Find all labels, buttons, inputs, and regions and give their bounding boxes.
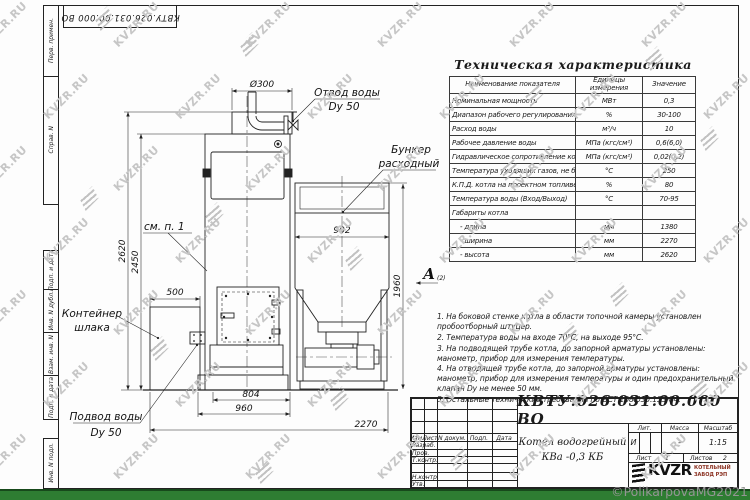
table-row: - длинамм1380 [450, 220, 696, 234]
tech-characteristics: Техническая характеристика Наименование … [449, 57, 697, 262]
tb-lit-label: Лит. [638, 425, 652, 432]
tb-scale-label: Масштаб [704, 425, 733, 432]
tb-col-ndoc: N докум. [438, 435, 466, 442]
watermark-text: KVZR.RU [0, 143, 30, 194]
kvzr-logo-text: KVZR [648, 461, 692, 479]
tb-designation: КВТУ.026.031.00.000 ВО [517, 397, 738, 423]
tb-row-utv: Утв. [412, 481, 425, 488]
table-row: Габариты котла [450, 206, 696, 220]
tech-header-name: Наименование показателя [450, 77, 576, 94]
margin-label: Перв. примен. [48, 18, 55, 63]
tb-document-name: Котел водогрейный КВа -0,3 КБ [517, 423, 628, 488]
tb-doc-name-line2: КВа -0,3 КБ [517, 450, 628, 465]
tb-sheets-value: 2 [723, 455, 727, 462]
tb-col-podp: Подп. [470, 435, 488, 442]
table-row: Рабочее давление водыМПа (кгс/см²)0,6(6,… [450, 136, 696, 150]
margin-cell: Подп. и дата [44, 251, 58, 290]
tb-col-list: Лист [422, 435, 437, 442]
table-row: Гидравлическое сопротивление котлаМПа (к… [450, 150, 696, 164]
watermark-text: KVZR.RU [0, 431, 30, 482]
table-row: - ширинамм2270 [450, 234, 696, 248]
margin-cell: Справ. N [44, 76, 58, 203]
table-row: - высотамм2620 [450, 248, 696, 262]
margin-cell: Взам. инв. N [44, 333, 58, 376]
margin-box-mid: Подп. и дата Инв. N дубл. Взам. инв. N П… [43, 250, 59, 420]
margin-cell: Перв. примен. [44, 6, 58, 77]
tech-header-row: Наименование показателя Единицы измерени… [450, 77, 696, 94]
watermark-text: KVZR.RU [0, 0, 30, 50]
margin-label: Подп. и дата [48, 250, 55, 291]
margin-box-top: Перв. примен. Справ. N [43, 5, 59, 205]
kvzr-company-name: КОТЕЛЬНЫЙ ЗАВОД РЭП [694, 465, 731, 479]
watermark-text: KVZR.RU [0, 287, 30, 338]
tech-header-unit: Единицы измерения [576, 77, 643, 94]
margin-label: Подп. и дата [48, 377, 55, 418]
tb-mass-label: Масса [670, 425, 689, 432]
tb-sheets-label: Листов [690, 455, 712, 462]
margin-cell: Инв. N подл. [44, 439, 58, 487]
margin-label: Инв. N подл. [48, 443, 55, 483]
margin-label: Инв. N дубл. [48, 291, 55, 330]
tb-doc-name-line1: Котел водогрейный [517, 435, 628, 450]
tb-row-tkontr: Т.контр. [412, 457, 438, 464]
tb-lit-value: И [631, 438, 637, 447]
table-row: Диапазон рабочего регулирования%30-100 [450, 108, 696, 122]
table-row: Расход водым³/ч10 [450, 122, 696, 136]
note-2: 2. Температура воды на входе 70°С, на вы… [437, 333, 739, 343]
tech-table: Наименование показателя Единицы измерени… [449, 76, 696, 262]
margin-label: Взам. инв. N [48, 335, 55, 374]
title-block: Изм. Лист N докум. Подп. Дата Разраб. Пр… [410, 397, 738, 488]
copyright-watermark: ©PolikarpovaMG2021 [611, 484, 748, 499]
kvzr-company-line1: КОТЕЛЬНЫЙ [694, 465, 731, 472]
kvzr-logo-icon [632, 463, 645, 483]
kvzr-company-line2: ЗАВОД РЭП [694, 472, 731, 479]
table-row: Температура воды (Вход/Выход)°С70-95 [450, 192, 696, 206]
table-row: Номинальная мощностьМВт0,3 [450, 94, 696, 108]
note-4: 4. На отводящей трубе котла, до запорной… [437, 364, 739, 394]
table-row: Температура уходящих газов, не более°С25… [450, 164, 696, 178]
margin-cell: Инв. N дубл. [44, 290, 58, 333]
tech-table-title: Техническая характеристика [449, 57, 697, 72]
tech-header-value: Значение [643, 77, 696, 94]
tb-row-nkontr: Н.контр. [412, 474, 439, 481]
tb-row-razrab: Разраб. [412, 442, 436, 449]
note-1: 1. На боковой стенке котла в области топ… [437, 312, 739, 332]
tb-col-data: Дата [496, 435, 512, 442]
margin-label: Справ. N [48, 126, 55, 153]
tb-row-prov: Пров. [412, 450, 429, 457]
note-3: 3. На подводящей трубе котла, до запорно… [437, 344, 739, 364]
tb-scale-value: 1:15 [709, 438, 727, 447]
designation-top-box: КВТУ.026.031.00.000 ВО [63, 5, 177, 28]
margin-box-bottom: Инв. N подл. [43, 438, 59, 489]
table-row: К.П.Д. котла на проектном топливе%80 [450, 178, 696, 192]
designation-top-text: КВТУ.026.031.00.000 ВО [61, 12, 180, 22]
tb-mass-value: - [678, 438, 681, 447]
margin-cell: Подп. и дата [44, 376, 58, 418]
